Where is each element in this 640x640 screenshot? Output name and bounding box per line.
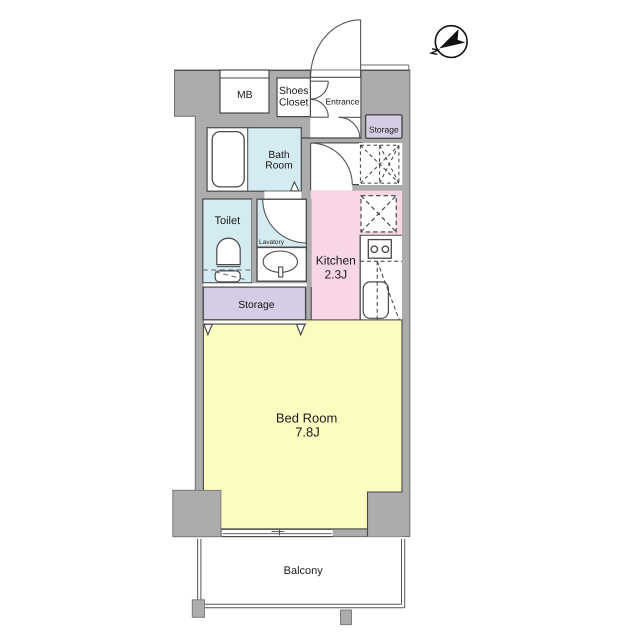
- svg-text:7.8J: 7.8J: [295, 424, 320, 439]
- svg-text:MB: MB: [237, 90, 253, 101]
- svg-text:Shoes: Shoes: [279, 86, 308, 97]
- svg-text:Lavatory: Lavatory: [259, 239, 285, 246]
- svg-text:2.3J: 2.3J: [324, 268, 347, 282]
- svg-text:Entrance: Entrance: [325, 96, 359, 106]
- svg-text:Toilet: Toilet: [214, 215, 240, 227]
- svg-text:Storage: Storage: [369, 124, 399, 134]
- svg-text:Kitchen: Kitchen: [316, 254, 356, 268]
- svg-text:Storage: Storage: [238, 300, 275, 311]
- svg-text:Bed Room: Bed Room: [276, 411, 337, 426]
- svg-text:Room: Room: [265, 160, 292, 171]
- svg-text:Closet: Closet: [279, 98, 309, 109]
- svg-text:Balcony: Balcony: [284, 565, 324, 577]
